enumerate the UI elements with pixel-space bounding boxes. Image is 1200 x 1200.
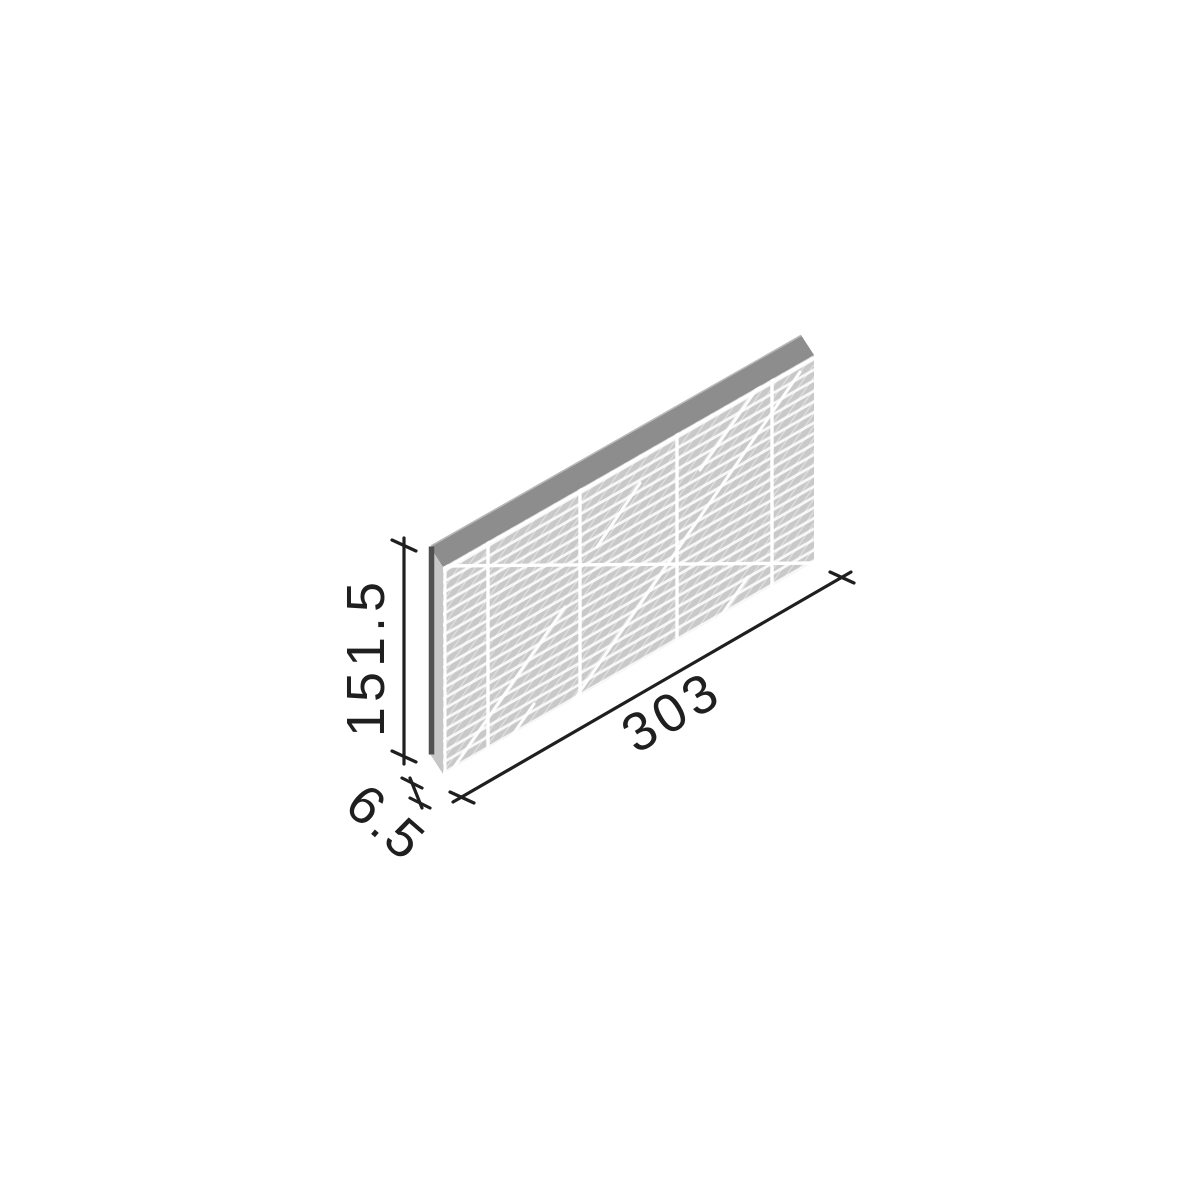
- tile-dimension-diagram: 151.5 303 6.5: [0, 0, 1200, 1200]
- diagram-svg: 151.5 303 6.5: [0, 0, 1200, 1200]
- height-dimension-label: 151.5: [336, 577, 396, 737]
